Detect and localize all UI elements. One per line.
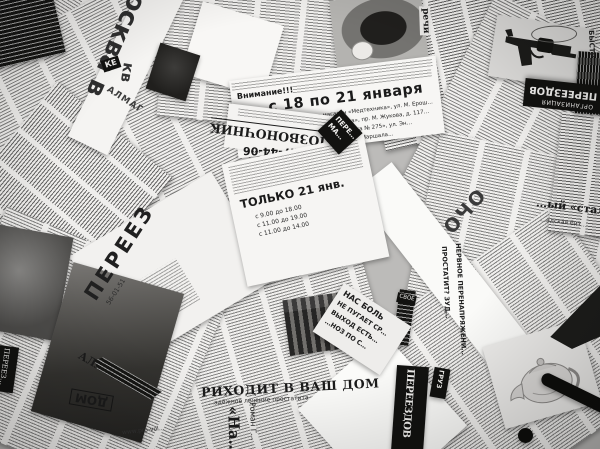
roman-vertical-caption: Роман Г…: [249, 402, 258, 441]
bystro-vertical-label: БЫСТР…: [587, 30, 595, 65]
cargo-label: ГРУЗ: [435, 370, 445, 389]
left-edge-banner-label: ПЕРЕЕЗ…: [0, 348, 10, 386]
book-title-vertical: «На…: [225, 406, 242, 449]
moving-banner-label: ПЕРЕЕЗДОВ: [400, 369, 415, 438]
moving-banner-vertical: ПЕРЕЕЗДОВ: [391, 365, 429, 449]
white-cup-in-photo: [350, 40, 374, 62]
moving-company-line: ПЕРЕЕЗДОВ: [529, 83, 598, 100]
black-dot: [518, 428, 533, 443]
rechi-vertical-label: речи: [419, 6, 431, 36]
newspaper-collage-photo: Внимание!!! с 18 по 21 января • Красногв…: [0, 0, 600, 449]
